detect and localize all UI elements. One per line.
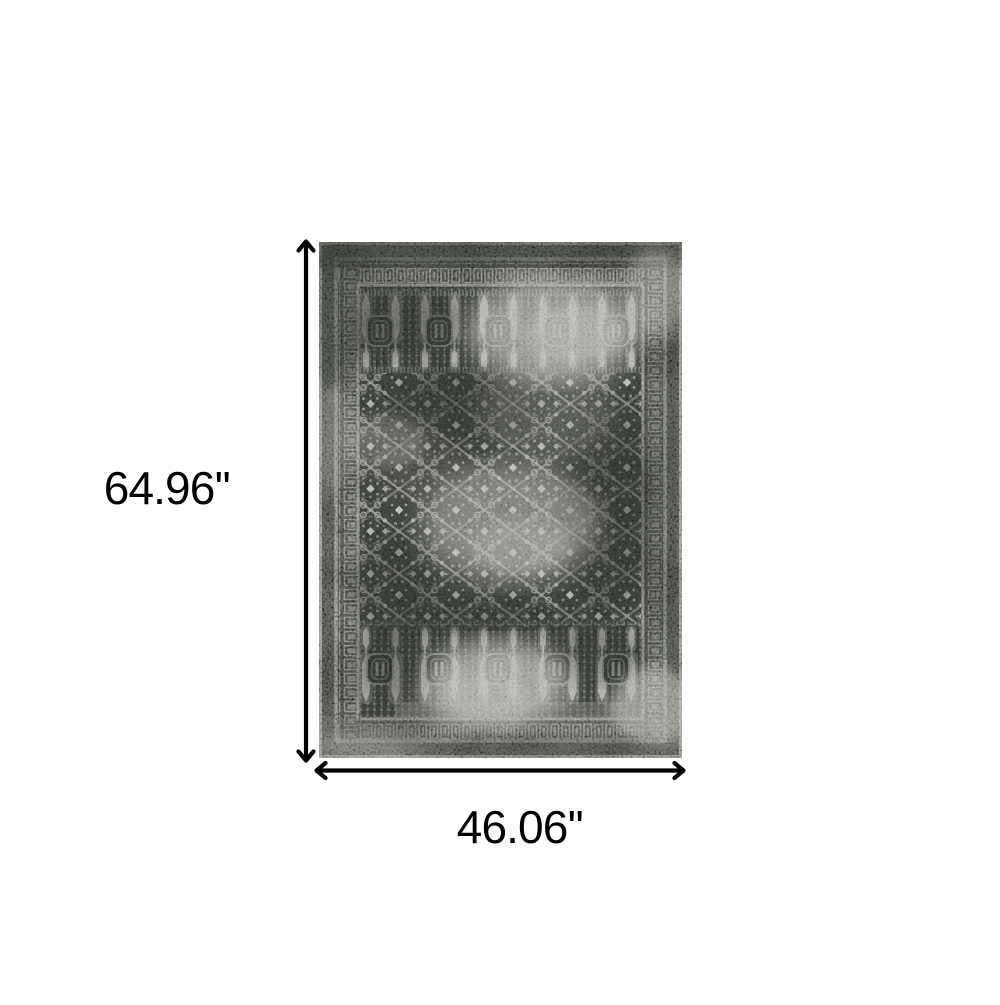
svg-text:46.06'': 46.06'' (457, 801, 583, 853)
svg-text:64.96'': 64.96'' (104, 462, 230, 514)
